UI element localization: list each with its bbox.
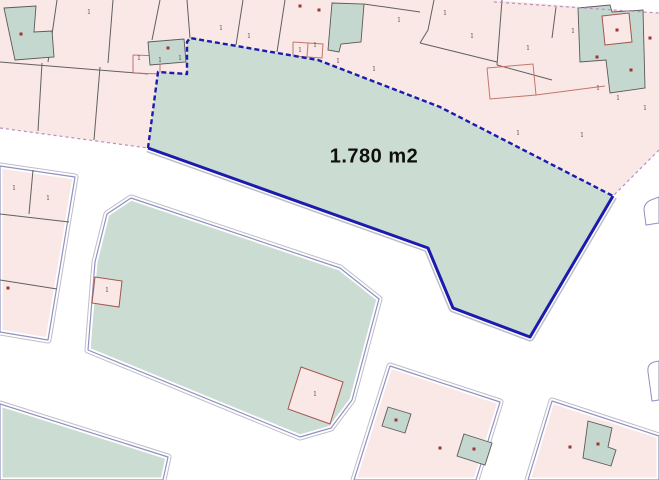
floor-count-label: 1 bbox=[643, 105, 647, 112]
floor-count-label: 1 bbox=[571, 28, 575, 35]
building-dot bbox=[596, 56, 599, 59]
floor-count-label: 1 bbox=[443, 10, 447, 17]
building-dot bbox=[473, 448, 476, 451]
floor-count-label: 1 bbox=[580, 132, 584, 139]
building-dot bbox=[569, 446, 572, 449]
building-dot bbox=[299, 5, 302, 8]
building-dot bbox=[630, 69, 633, 72]
building-dot bbox=[7, 287, 10, 290]
floor-count-label: 1 bbox=[219, 25, 223, 32]
parcel-area-label: 1.780 m2 bbox=[330, 146, 419, 169]
floor-count-label: 1 bbox=[616, 95, 620, 102]
floor-count-label: 1 bbox=[46, 195, 50, 202]
floor-count-label: 1 bbox=[105, 287, 109, 294]
building-dot bbox=[597, 443, 600, 446]
floor-count-label: 1 bbox=[137, 55, 141, 62]
building-dot bbox=[20, 33, 23, 36]
floor-count-label: 1 bbox=[158, 57, 162, 64]
floor-count-label: 1 bbox=[470, 33, 474, 40]
building-dot bbox=[616, 29, 619, 32]
floor-count-label: 1 bbox=[12, 185, 16, 192]
floor-count-label: 1 bbox=[336, 58, 340, 65]
floor-count-label: 1 bbox=[526, 45, 530, 52]
map-canvas[interactable]: 111111111111111111111111 bbox=[0, 0, 659, 480]
building-dot bbox=[395, 419, 398, 422]
building-dot bbox=[318, 9, 321, 12]
building-dot bbox=[649, 37, 652, 40]
cadastral-map-view: 111111111111111111111111 1.780 m2 bbox=[0, 0, 659, 480]
floor-count-label: 1 bbox=[298, 47, 302, 54]
floor-count-label: 1 bbox=[247, 33, 251, 40]
floor-count-label: 1 bbox=[397, 17, 401, 24]
floor-count-label: 1 bbox=[313, 42, 317, 49]
floor-count-label: 1 bbox=[596, 85, 600, 92]
floor-count-label: 1 bbox=[178, 55, 182, 62]
floor-count-label: 1 bbox=[516, 130, 520, 137]
floor-count-label: 1 bbox=[87, 9, 91, 16]
building-dot bbox=[167, 47, 170, 50]
floor-count-label: 1 bbox=[372, 66, 376, 73]
building-dot bbox=[439, 447, 442, 450]
floor-count-label: 1 bbox=[313, 391, 317, 398]
